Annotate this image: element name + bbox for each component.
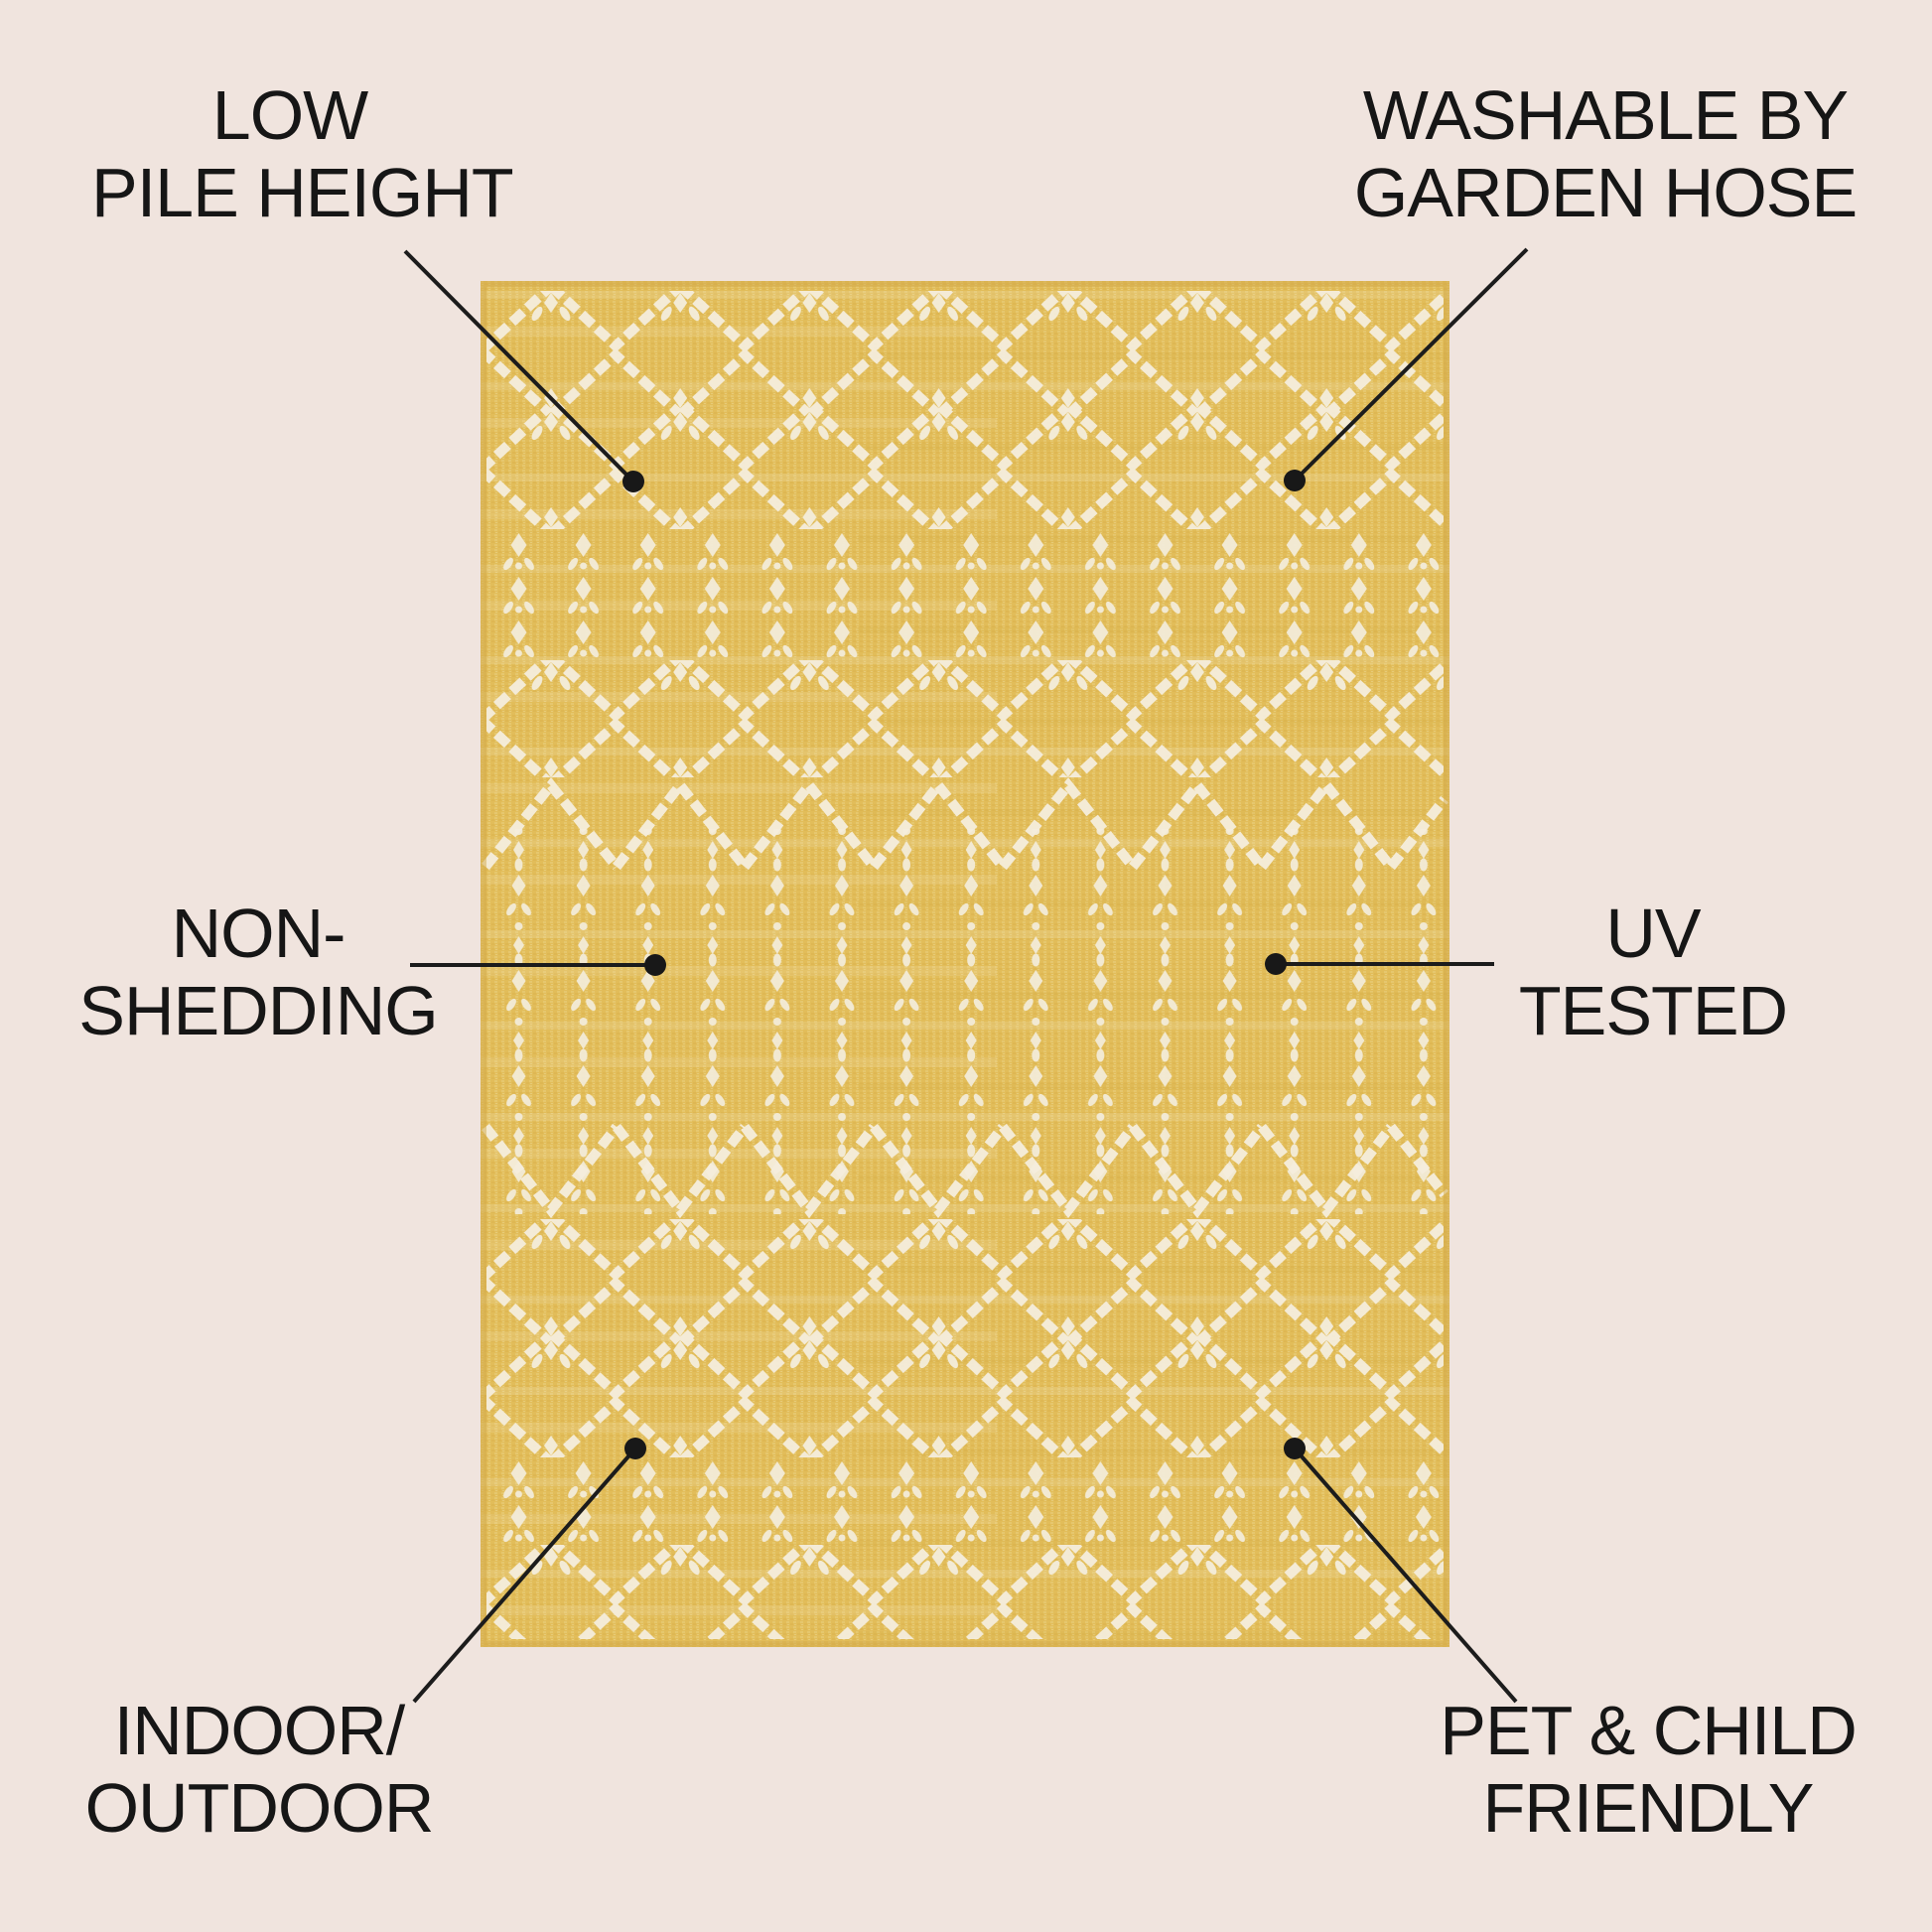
rug-graphic bbox=[481, 281, 1449, 1647]
callout-text-line: INDOOR/ bbox=[41, 1692, 478, 1769]
callout-text-line: NON- bbox=[50, 895, 467, 972]
callout-text-line: SHEDDING bbox=[50, 972, 467, 1049]
callout-label-washable-by-garden-hose: WASHABLE BY GARDEN HOSE bbox=[1345, 76, 1865, 231]
callout-label-low-pile-height: LOW PILE HEIGHT bbox=[91, 76, 488, 231]
rug-image bbox=[481, 281, 1449, 1647]
callout-text-line: FRIENDLY bbox=[1400, 1769, 1896, 1847]
callout-label-pet-child-friendly: PET & CHILD FRIENDLY bbox=[1400, 1692, 1896, 1847]
callout-text-line: TESTED bbox=[1445, 972, 1862, 1049]
callout-text-line: PILE HEIGHT bbox=[91, 154, 488, 231]
product-infographic: LOW PILE HEIGHT WASHABLE BY GARDEN HOSE … bbox=[0, 0, 1932, 1932]
callout-label-uv-tested: UV TESTED bbox=[1445, 895, 1862, 1049]
callout-label-indoor-outdoor: INDOOR/ OUTDOOR bbox=[41, 1692, 478, 1847]
callout-text-line: WASHABLE BY bbox=[1345, 76, 1865, 154]
callout-text-line: OUTDOOR bbox=[41, 1769, 478, 1847]
callout-label-non-shedding: NON- SHEDDING bbox=[50, 895, 467, 1049]
callout-text-line: GARDEN HOSE bbox=[1345, 154, 1865, 231]
callout-text-line: LOW bbox=[91, 76, 488, 154]
callout-text-line: UV bbox=[1445, 895, 1862, 972]
callout-text-line: PET & CHILD bbox=[1400, 1692, 1896, 1769]
